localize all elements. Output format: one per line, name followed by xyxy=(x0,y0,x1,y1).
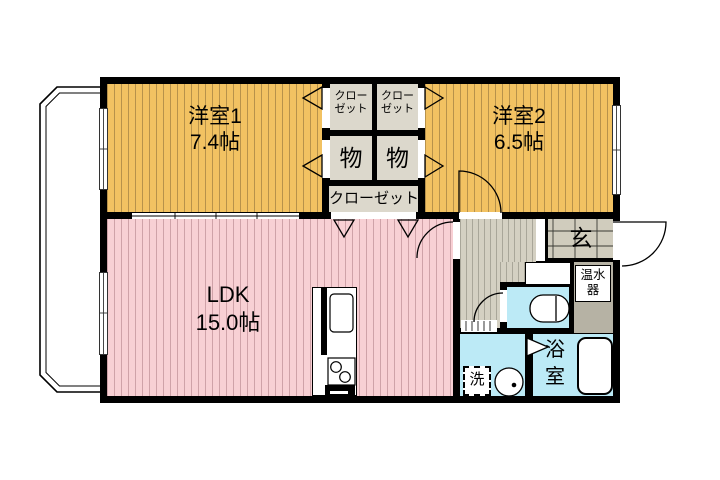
water-heater-line1: 温水 xyxy=(580,268,605,282)
entrance-step xyxy=(536,219,545,261)
bedroom1-window xyxy=(99,108,108,190)
kitchen-counter xyxy=(312,287,357,396)
bedroom1-name: 洋室1 xyxy=(188,105,242,128)
hallway-corner xyxy=(500,262,525,282)
bedroom2-area: 6.5帖 xyxy=(494,131,544,154)
bathtub xyxy=(577,337,613,395)
ldk-door-opening xyxy=(453,222,460,259)
laundry-label: 洗 xyxy=(463,372,491,388)
closet-right-door xyxy=(418,88,425,128)
closet-wide-door xyxy=(331,212,416,219)
toilet-door-opening xyxy=(500,290,507,322)
storage-right-door xyxy=(418,140,425,178)
ldk-name: LDK xyxy=(207,282,250,307)
storage-left-label: 物 xyxy=(330,146,372,170)
hallway-lower xyxy=(460,262,500,328)
storage-left-door xyxy=(322,140,330,178)
bedroom2-label: 洋室2 6.5帖 xyxy=(449,104,589,156)
bedroom2-window xyxy=(612,105,621,195)
closet-left-door xyxy=(322,88,330,128)
closet-right-line2: ゼット xyxy=(381,103,414,115)
ldk-label: LDK 15.0帖 xyxy=(158,281,298,337)
hallway-upper xyxy=(460,219,536,262)
shoe-cabinet xyxy=(525,262,571,285)
water-heater-label: 温水 器 xyxy=(575,268,611,298)
washroom-door xyxy=(461,320,497,332)
bathroom-line2: 室 xyxy=(545,366,565,388)
storage-right-label: 物 xyxy=(377,146,418,170)
toilet-room xyxy=(507,287,569,328)
entrance-label: 玄 xyxy=(566,226,596,250)
bedroom1-area: 7.4帖 xyxy=(190,131,240,154)
water-heater-line2: 器 xyxy=(587,283,600,297)
bedroom2-door-opening xyxy=(459,212,502,219)
sliding-partition xyxy=(132,213,299,219)
ldk-window xyxy=(99,272,108,355)
bedroom2-name: 洋室2 xyxy=(492,105,546,128)
closet-right-line1: クロー xyxy=(381,90,414,102)
front-door-arc xyxy=(613,222,666,266)
closet-wide-label: クローゼット xyxy=(329,190,418,207)
closet-left-label: クロー ゼット xyxy=(330,90,372,116)
bedroom1-label: 洋室1 7.4帖 xyxy=(145,104,285,156)
balcony-railing xyxy=(40,87,100,392)
bathroom-line1: 浴 xyxy=(545,339,565,361)
floorplan-canvas: 洋室1 7.4帖 洋室2 6.5帖 LDK 15.0帖 クロー ゼット クロー … xyxy=(0,0,720,480)
front-door-opening xyxy=(613,221,620,260)
closet-left-line1: クロー xyxy=(335,90,368,102)
closet-right-label: クロー ゼット xyxy=(377,90,418,116)
ldk-area: 15.0帖 xyxy=(196,310,261,335)
bathroom-label: 浴 室 xyxy=(540,337,570,391)
closet-left-line2: ゼット xyxy=(335,103,368,115)
